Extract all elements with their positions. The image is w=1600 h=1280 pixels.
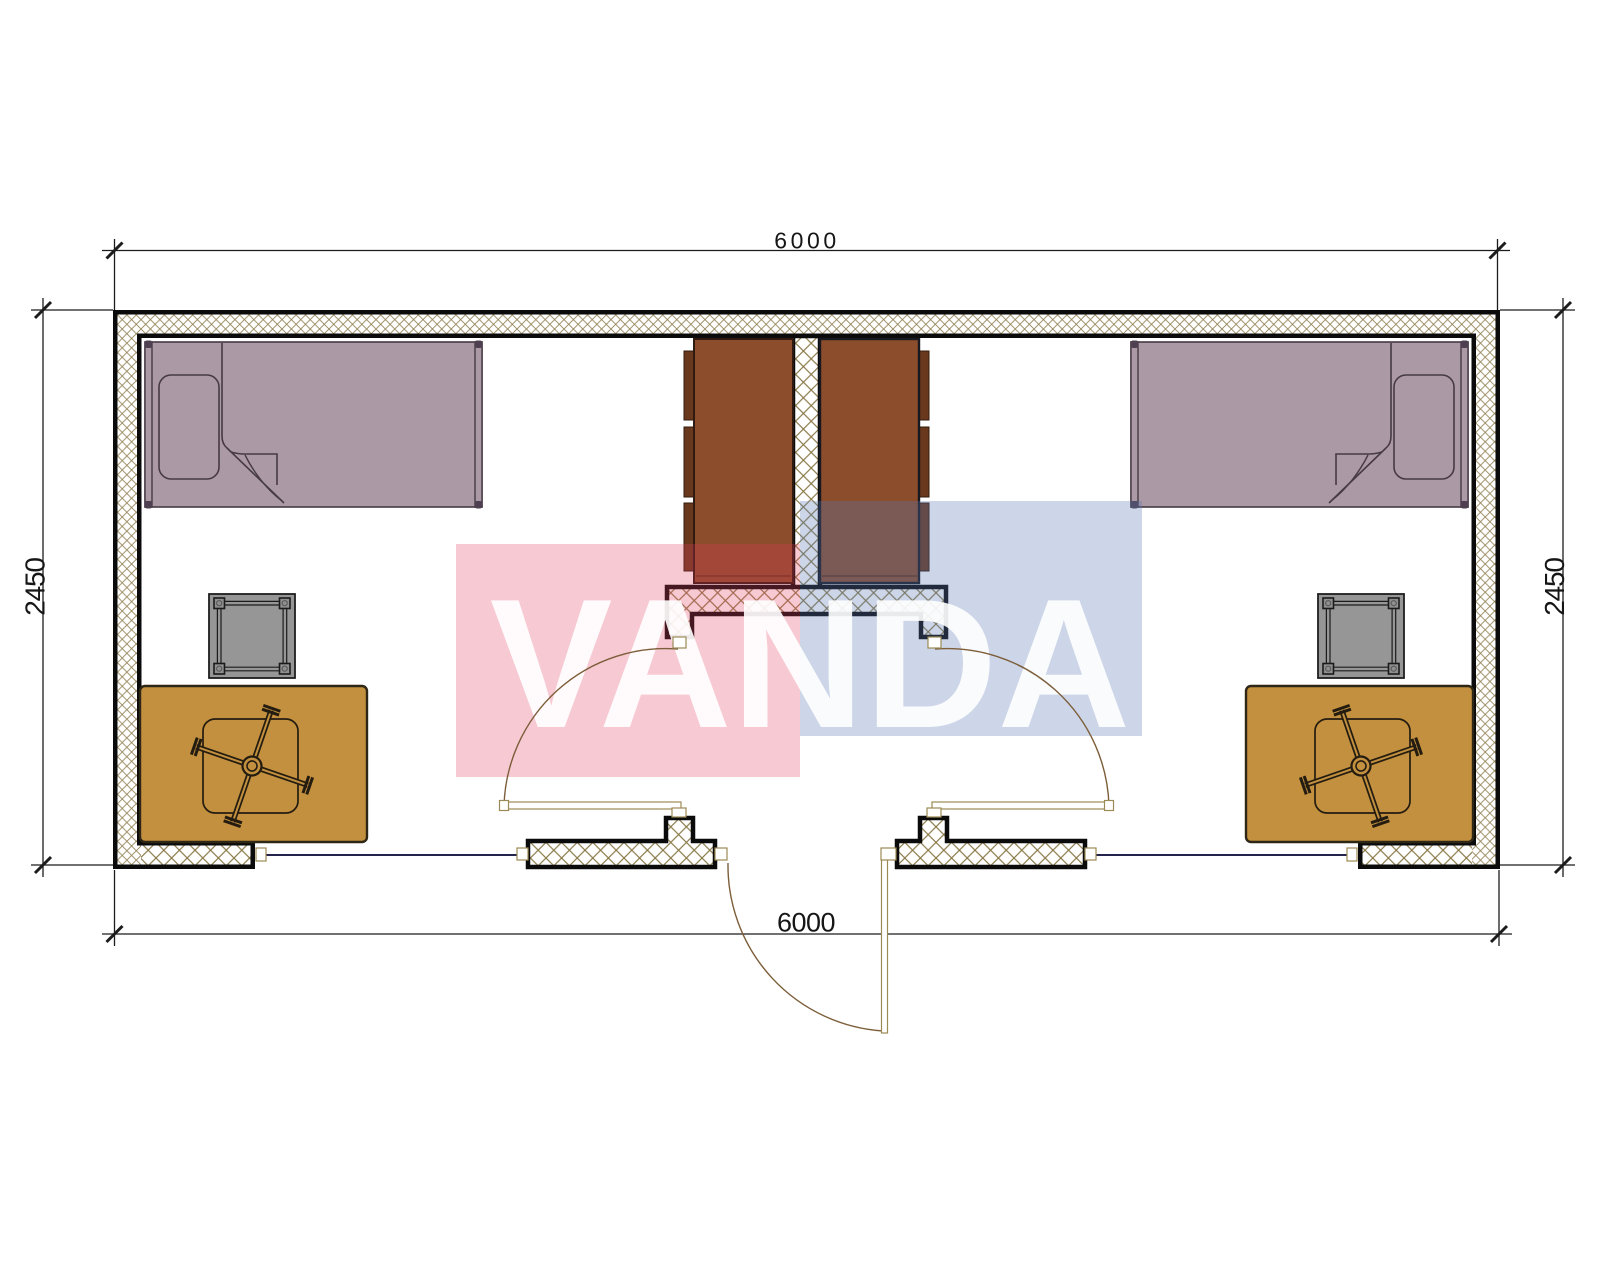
svg-text:2450: 2450 (1539, 558, 1570, 616)
svg-text:2450: 2450 (20, 558, 51, 616)
svg-text:VANDA: VANDA (490, 560, 1131, 766)
svg-text:6000: 6000 (774, 228, 840, 254)
svg-text:6000: 6000 (777, 908, 835, 938)
